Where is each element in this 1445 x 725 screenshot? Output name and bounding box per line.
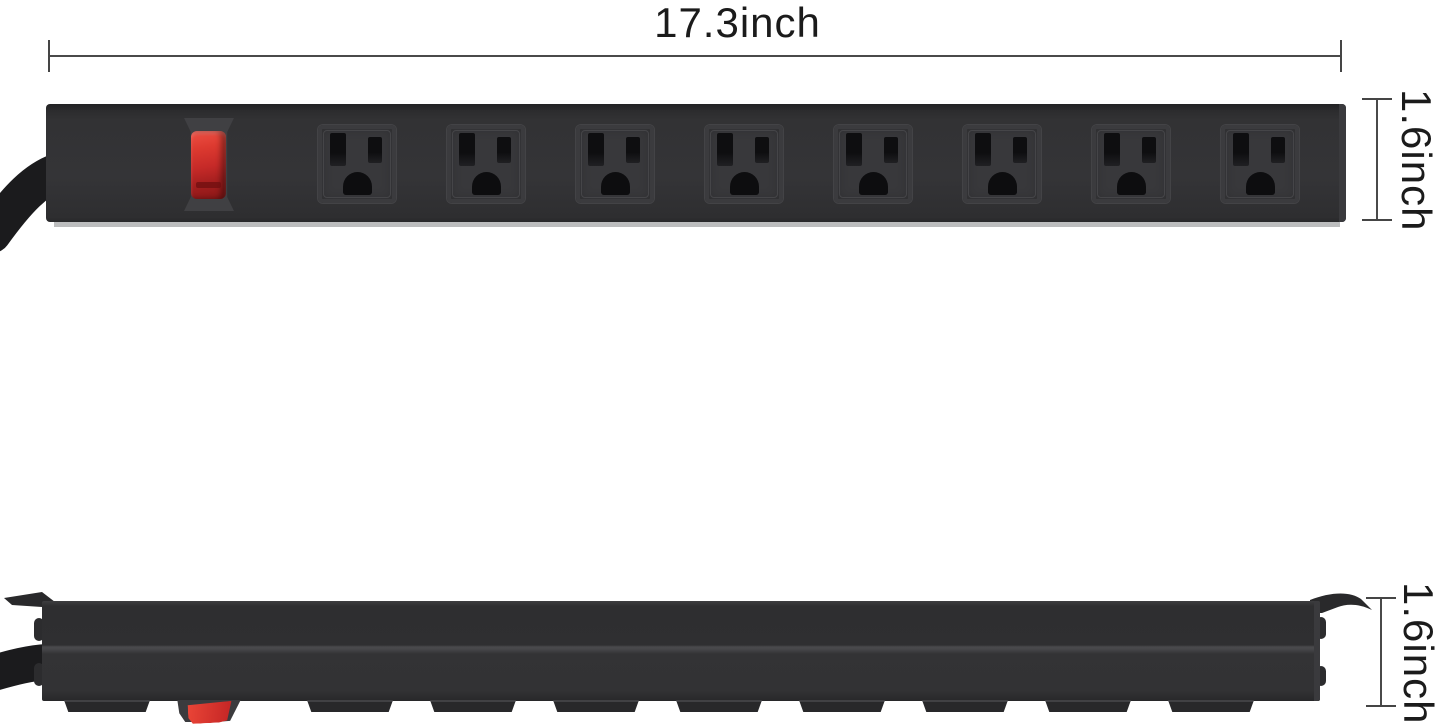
ground-slot: [343, 172, 372, 195]
ground-slot: [859, 172, 888, 195]
hot-slot: [755, 137, 769, 163]
strip-bottom-shadow: [54, 222, 1340, 227]
hot-slot: [368, 137, 382, 163]
neutral-slot: [717, 133, 733, 166]
ground-slot: [472, 172, 501, 195]
rubber-foot: [1168, 700, 1254, 712]
height-dimension-line-front: [1376, 99, 1378, 221]
outlet: [963, 125, 1041, 203]
height-dimension-tick-top-front: [1362, 98, 1392, 100]
height-dimension-line-side: [1380, 598, 1382, 707]
height-dimension-label-front: 1.6inch: [1392, 94, 1440, 226]
height-dimension-tick-bottom-front: [1362, 219, 1392, 221]
hot-slot: [497, 137, 511, 163]
rubber-foot: [799, 700, 885, 712]
ground-slot: [1117, 172, 1146, 195]
rubber-foot: [1045, 700, 1131, 712]
power-strip-front-view: [46, 104, 1346, 222]
outlet: [1221, 125, 1299, 203]
rubber-foot: [553, 700, 639, 712]
neutral-slot: [330, 133, 346, 166]
outlet: [1092, 125, 1170, 203]
neutral-slot: [588, 133, 604, 166]
neutral-slot: [975, 133, 991, 166]
outlet: [705, 125, 783, 203]
height-dimension-tick-top-side: [1366, 597, 1396, 599]
hot-slot: [1142, 137, 1156, 163]
ground-slot: [988, 172, 1017, 195]
rubber-foot: [307, 700, 393, 712]
outlet: [447, 125, 525, 203]
height-dimension-tick-bottom-side: [1366, 705, 1396, 707]
ground-slot: [601, 172, 630, 195]
width-dimension-tick-right: [1340, 40, 1342, 72]
outlet: [318, 125, 396, 203]
ground-slot: [1246, 172, 1275, 195]
width-dimension-label: 17.3inch: [49, 0, 1342, 46]
power-strip-side-view: [42, 601, 1320, 701]
rubber-foot: [922, 700, 1008, 712]
width-dimension-line: [49, 55, 1341, 57]
rubber-foot: [676, 700, 762, 712]
hot-slot: [626, 137, 640, 163]
rubber-foot: [430, 700, 516, 712]
ground-slot: [730, 172, 759, 195]
neutral-slot: [846, 133, 862, 166]
rubber-foot: [64, 700, 150, 712]
product-image-canvas: 17.3inch: [0, 0, 1445, 725]
height-dimension-label-side: 1.6inch: [1394, 582, 1442, 725]
outlet: [576, 125, 654, 203]
neutral-slot: [1104, 133, 1120, 166]
outlet: [834, 125, 912, 203]
hot-slot: [884, 137, 898, 163]
neutral-slot: [1233, 133, 1249, 166]
outlet-row: [46, 104, 1346, 222]
neutral-slot: [459, 133, 475, 166]
width-dimension-tick-left: [48, 40, 50, 72]
hot-slot: [1271, 137, 1285, 163]
hot-slot: [1013, 137, 1027, 163]
